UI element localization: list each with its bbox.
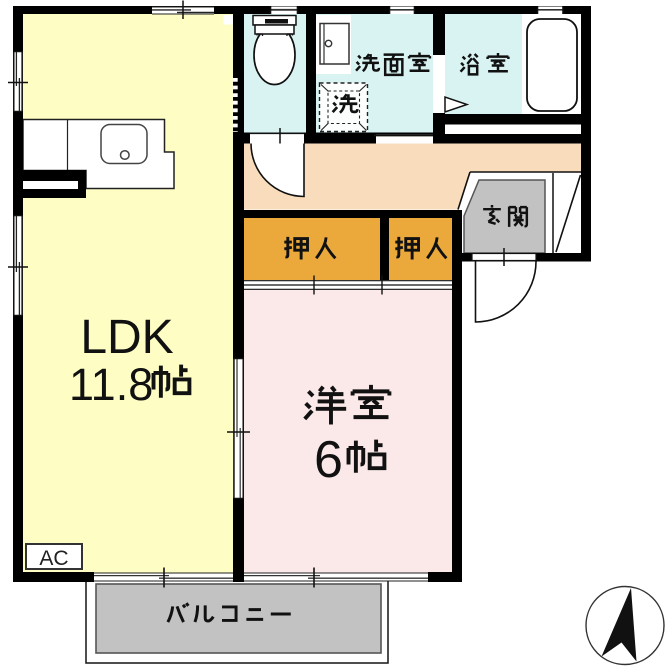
svg-text:LDK: LDK <box>80 311 173 364</box>
svg-text:6: 6 <box>314 431 343 489</box>
svg-text:AC: AC <box>39 547 68 570</box>
svg-text:11.8: 11.8 <box>69 359 153 410</box>
